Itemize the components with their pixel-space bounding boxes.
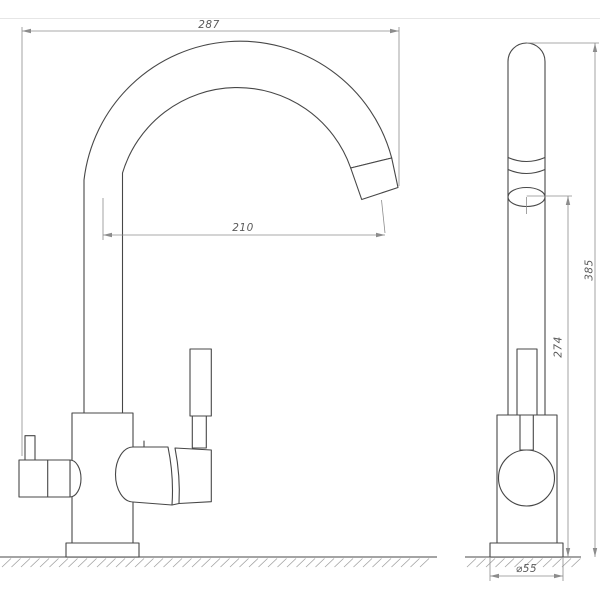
front-mixer-lever-base xyxy=(175,448,211,504)
hatch-stroke xyxy=(40,559,49,568)
ground xyxy=(0,557,581,567)
hatch-stroke xyxy=(335,559,344,568)
front-cartridge-barrel xyxy=(116,447,173,505)
hatch-stroke xyxy=(107,559,116,568)
hatch-stroke xyxy=(97,559,106,568)
side-handle-rod xyxy=(520,415,533,450)
arrowhead xyxy=(566,548,570,557)
hatch-stroke xyxy=(12,559,21,568)
dimension-value: 385 xyxy=(584,259,596,281)
front-handle-grip xyxy=(190,349,211,416)
hatch-stroke xyxy=(259,559,268,568)
hatch-stroke xyxy=(69,559,78,568)
arrowhead xyxy=(22,29,31,33)
hatch-stroke xyxy=(192,559,201,568)
faucet-side-view xyxy=(490,43,563,557)
hatch-stroke xyxy=(505,559,514,568)
hatch-stroke xyxy=(240,559,249,568)
hatch-stroke xyxy=(486,559,495,568)
side-cartridge-circle xyxy=(499,450,555,506)
dimension-value: 210 xyxy=(232,222,254,234)
hatch-stroke xyxy=(211,559,220,568)
hatch-stroke xyxy=(31,559,40,568)
hatch-stroke xyxy=(2,559,11,568)
hatch-stroke xyxy=(467,559,476,568)
side-base-plate xyxy=(490,543,563,557)
leader-line xyxy=(382,200,386,233)
arrowhead xyxy=(593,43,597,52)
front-filter-lever-stem xyxy=(25,436,35,460)
hatch-stroke xyxy=(183,559,192,568)
hatch-stroke xyxy=(221,559,230,568)
front-base-plate xyxy=(66,543,139,557)
hatch-stroke xyxy=(306,559,315,568)
hatch-stroke xyxy=(316,559,325,568)
arrowhead xyxy=(390,29,399,33)
hatch-stroke xyxy=(88,559,97,568)
drawing-canvas: 287 210 385 274 xyxy=(0,0,600,600)
hatch-stroke xyxy=(401,559,410,568)
hatch-stroke xyxy=(344,559,353,568)
hatch-stroke xyxy=(164,559,173,568)
hatch-stroke xyxy=(373,559,382,568)
arrowhead xyxy=(593,548,597,557)
arrowhead xyxy=(490,574,499,578)
arrowhead xyxy=(376,233,385,237)
hatch-stroke xyxy=(477,559,486,568)
dimension-value: 287 xyxy=(198,19,220,31)
hatch-stroke xyxy=(287,559,296,568)
hatch-stroke xyxy=(543,559,552,568)
dimension-value: 274 xyxy=(553,336,565,358)
hatch-stroke xyxy=(392,559,401,568)
faucet-technical-drawing: 287 210 385 274 xyxy=(0,0,600,600)
hatch-stroke xyxy=(553,559,562,568)
ground-hatching-front xyxy=(2,559,429,568)
front-filter-lever-housing xyxy=(19,460,70,497)
hatch-stroke xyxy=(78,559,87,568)
hatch-stroke xyxy=(411,559,420,568)
hatch-stroke xyxy=(496,559,505,568)
hatch-stroke xyxy=(173,559,182,568)
hatch-stroke xyxy=(135,559,144,568)
hatch-stroke xyxy=(202,559,211,568)
hatch-stroke xyxy=(268,559,277,568)
hatch-stroke xyxy=(21,559,30,568)
hatch-stroke xyxy=(154,559,163,568)
front-lever-joint-tick xyxy=(172,504,179,506)
hatch-stroke xyxy=(59,559,68,568)
side-handle-grip xyxy=(517,349,537,415)
hatch-stroke xyxy=(249,559,258,568)
hatch-stroke xyxy=(325,559,334,568)
front-handle-rod xyxy=(192,416,206,448)
hatch-stroke xyxy=(354,559,363,568)
arrowhead xyxy=(566,196,570,205)
arrowhead xyxy=(554,574,563,578)
hatch-stroke xyxy=(278,559,287,568)
hatch-stroke xyxy=(297,559,306,568)
faucet-front-view xyxy=(19,41,398,557)
hatch-stroke xyxy=(363,559,372,568)
hatch-stroke xyxy=(50,559,59,568)
hatch-stroke xyxy=(145,559,154,568)
dimension-value: ⌀55 xyxy=(516,563,537,575)
hatch-stroke xyxy=(572,559,581,568)
hatch-stroke xyxy=(230,559,239,568)
hatch-stroke xyxy=(116,559,125,568)
hatch-stroke xyxy=(382,559,391,568)
hatch-stroke xyxy=(420,559,429,568)
hatch-stroke xyxy=(126,559,135,568)
dimension-spout-reach: 210 xyxy=(103,198,385,240)
